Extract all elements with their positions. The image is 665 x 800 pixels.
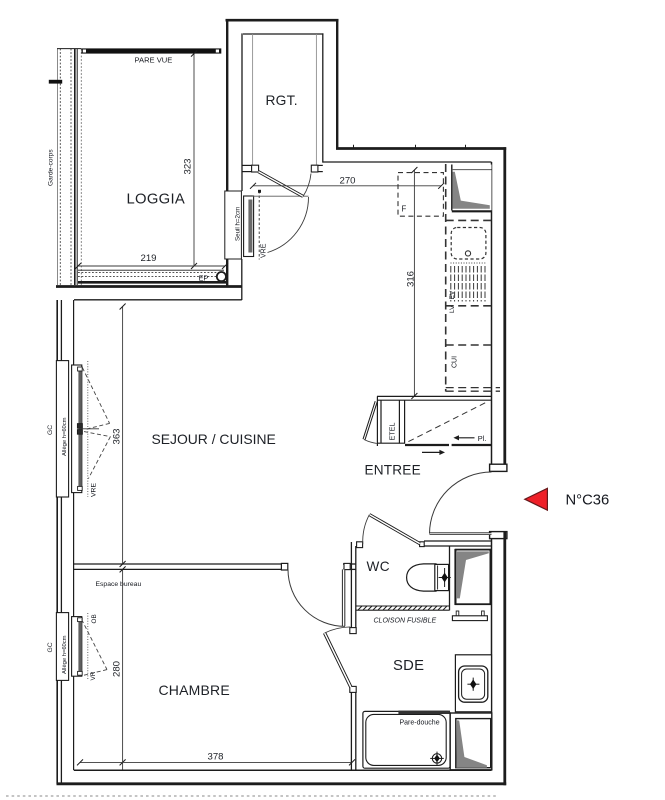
svg-text:316: 316 [406,271,417,287]
svg-text:Allège h=60cm: Allège h=60cm [62,417,68,456]
svg-text:CHAMBRE: CHAMBRE [159,682,230,698]
svg-text:GC: GC [47,642,54,652]
svg-text:Allège h=60cm: Allège h=60cm [62,635,68,674]
svg-text:378: 378 [208,752,224,763]
svg-text:363: 363 [112,428,123,444]
svg-text:323: 323 [183,158,194,174]
svg-text:N°C36: N°C36 [566,493,610,509]
svg-text:VRE: VRE [91,483,98,497]
svg-text:LOGGIA: LOGGIA [127,192,186,208]
svg-text:SEJOUR / CUISINE: SEJOUR / CUISINE [152,431,276,447]
svg-text:F: F [402,205,407,214]
svg-text:WC: WC [367,559,390,574]
svg-text:CLOISON FUSIBLE: CLOISON FUSIBLE [374,618,437,625]
svg-text:Espace bureau: Espace bureau [96,581,142,588]
svg-text:280: 280 [112,661,123,677]
svg-text:EV: EV [449,290,456,299]
svg-text:270: 270 [340,176,356,187]
svg-text:Garde-corps: Garde-corps [48,149,55,186]
svg-text:CUI: CUI [452,356,459,368]
svg-text:EP: EP [199,274,209,283]
svg-text:SDE: SDE [393,658,424,674]
svg-text:Pl.: Pl. [478,434,487,443]
svg-text:Pare-douche: Pare-douche [400,720,440,727]
svg-text:OB: OB [91,614,98,623]
svg-text:219: 219 [141,253,157,264]
svg-text:GC: GC [47,425,54,435]
svg-text:ETEL: ETEL [388,423,397,441]
svg-text:ENTREE: ENTREE [365,463,421,478]
svg-text:RGT.: RGT. [266,93,298,108]
svg-text:PARE VUE: PARE VUE [135,56,173,65]
svg-text:Seuil h=2cm: Seuil h=2cm [235,207,242,241]
svg-text:VRE: VRE [261,243,268,258]
svg-text:VR: VR [90,671,97,680]
